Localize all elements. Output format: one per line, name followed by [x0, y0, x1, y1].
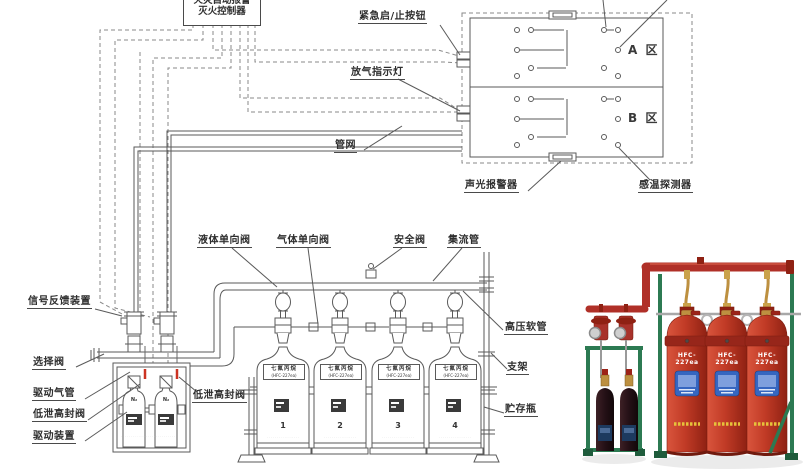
cylinder-4-fine-print: ······················· — [439, 435, 471, 439]
label-manifold: 集流管 — [447, 235, 481, 248]
cylinder-2-plate: 七氟丙烷 (HFC-227ea) — [320, 364, 362, 380]
label-emergency-button: 紧急启/止按钮 — [358, 11, 427, 24]
plate-agent-name: 七氟丙烷 — [264, 366, 304, 373]
plate-agent-name: 七氟丙烷 — [379, 366, 419, 373]
cylinder-1-fine-print: ······················· — [267, 435, 299, 439]
plate-agent-model: (HFC-227ea) — [321, 373, 361, 378]
cylinder-4-plate: 七氟丙烷 (HFC-227ea) — [435, 364, 477, 380]
label-selector-valve: 选择阀 — [32, 357, 66, 370]
plate-agent-model: (HFC-227ea) — [379, 373, 419, 378]
label-signal-feedback: 信号反馈装置 — [27, 296, 92, 309]
label-low-leak-valve-right: 低泄高封阀 — [192, 390, 247, 403]
fire-alarm-controller: 火灾自动报警 灭火控制器 — [183, 0, 261, 26]
plate-agent-model: (HFC-227ea) — [436, 373, 476, 378]
label-bracket: 支架 — [506, 362, 529, 375]
label-drive-device: 驱动装置 — [32, 431, 76, 444]
driver-box-fine-print: ···························· — [121, 434, 183, 438]
driver-bottle-1-gas-label: N₂ — [128, 397, 140, 403]
driver-bottle-2-gas-label: N₂ — [160, 397, 172, 403]
cylinder-2-fine-print: ······················· — [324, 435, 356, 439]
label-storage-bottle: 贮存瓶 — [504, 404, 538, 417]
cylinder-2-number: 2 — [334, 421, 346, 430]
label-sound-light-alarm: 声光报警器 — [464, 180, 519, 193]
cylinder-1-number: 1 — [277, 421, 289, 430]
zone-a-label: A 区 — [628, 41, 659, 58]
cylinder-1-plate: 七氟丙烷 (HFC-227ea) — [263, 364, 305, 380]
cylinder-4-number: 4 — [449, 421, 461, 430]
fire-suppression-system-diagram: 火灾自动报警 灭火控制器 紧急启/止按钮 放气指示灯 管网 声光报警器 感温探测… — [0, 0, 810, 474]
cylinder-3-number: 3 — [392, 421, 404, 430]
photo-cylinder-3-text: HFC-227ea — [747, 352, 787, 366]
label-liquid-check-valve: 液体单向阀 — [197, 235, 252, 248]
label-drive-gas-pipe: 驱动气管 — [32, 388, 76, 401]
plate-agent-name: 七氟丙烷 — [436, 366, 476, 373]
label-release-indicator: 放气指示灯 — [350, 67, 405, 80]
controller-line2: 灭火控制器 — [184, 6, 260, 17]
plate-agent-name: 七氟丙烷 — [321, 366, 361, 373]
label-low-leak-valve-left: 低泄高封阀 — [32, 409, 87, 422]
label-safety-valve: 安全阀 — [393, 235, 427, 248]
photo-cylinder-1-text: HFC-227ea — [667, 352, 707, 366]
photo-cylinder-2-text: HFC-227ea — [707, 352, 747, 366]
label-hp-hose: 高压软管 — [504, 322, 548, 335]
selector-and-driver — [113, 312, 190, 452]
cylinder-3-fine-print: ······················· — [382, 435, 414, 439]
cylinder-3-plate: 七氟丙烷 (HFC-227ea) — [378, 364, 420, 380]
label-heat-detector: 感温探测器 — [638, 180, 693, 193]
plate-agent-model: (HFC-227ea) — [264, 373, 304, 378]
zone-b-label: B 区 — [628, 109, 659, 126]
zone-boxes — [457, 11, 663, 161]
label-pipe-network: 管网 — [334, 140, 357, 153]
label-gas-check-valve: 气体单向阀 — [276, 235, 331, 248]
